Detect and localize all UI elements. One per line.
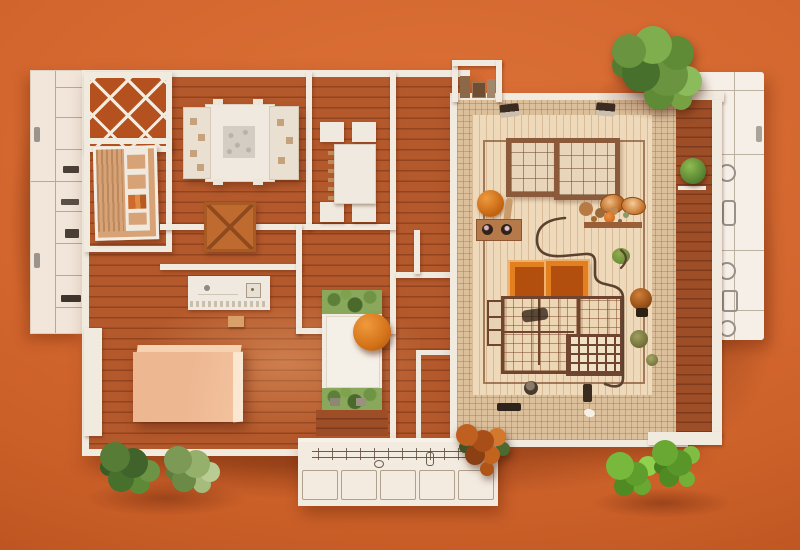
wall-dining-left xyxy=(306,72,312,230)
wing-shelf-line xyxy=(55,243,85,244)
miniature-object xyxy=(487,79,495,98)
planter-pot xyxy=(356,398,366,406)
bent-wire-sculpture xyxy=(457,100,667,426)
sink-basin-line xyxy=(198,294,238,295)
bed-tab xyxy=(213,99,223,105)
cabinet-face-row xyxy=(302,470,494,500)
daybed-head-planter xyxy=(322,290,382,314)
small-stool xyxy=(228,316,244,327)
wing-shelf-line xyxy=(55,149,85,150)
shelf-object-sketch xyxy=(61,199,79,205)
counter-dentil-trim xyxy=(190,301,268,307)
bottom-cabinet-panel xyxy=(298,438,498,506)
daybed-platform xyxy=(316,410,388,436)
niche-right-wall xyxy=(496,60,502,102)
planter-pot xyxy=(330,398,340,406)
wardrobe-shelf-column xyxy=(124,148,150,231)
cabinet-sketch-circle xyxy=(374,460,384,468)
headboard-cutout xyxy=(197,164,204,171)
peach-sofa-block xyxy=(133,352,241,422)
sofa-body xyxy=(133,352,233,422)
top-niche xyxy=(452,60,502,102)
double-bed xyxy=(183,104,297,180)
porch-right-wall xyxy=(712,100,722,436)
shelf-books-orange xyxy=(128,194,146,208)
hinge-sketch xyxy=(756,126,762,142)
dining-chair xyxy=(352,202,376,222)
cabinet-face xyxy=(302,470,338,500)
footboard-cutout xyxy=(278,157,285,164)
niche-top-wall xyxy=(452,60,502,66)
sofa-side-face xyxy=(233,352,243,423)
wing-shelf-line xyxy=(55,117,85,118)
porch-plant-shelf xyxy=(678,186,706,190)
kitchen-counter xyxy=(188,276,270,310)
hinge-sketch xyxy=(34,253,40,268)
dining-chair xyxy=(352,122,376,142)
bed-footboard xyxy=(269,106,299,180)
cabinet-face xyxy=(419,470,455,500)
cabinet-face xyxy=(380,470,416,500)
wing-shelf-line xyxy=(55,307,85,308)
wing-divider-line xyxy=(55,71,56,333)
photo-of-floorplan-model xyxy=(0,0,800,550)
bush-shadow xyxy=(86,480,246,516)
pitched-roof-side-table xyxy=(204,202,256,252)
shelf-object-sketch xyxy=(61,295,81,302)
headboard-cutout xyxy=(198,134,205,141)
wing-shelf-line xyxy=(55,275,85,276)
wall-kitchen-top xyxy=(160,264,302,270)
headboard-cutout xyxy=(190,118,197,125)
miniature-object xyxy=(472,82,486,98)
shelf-opening xyxy=(128,174,146,188)
bed-tab xyxy=(253,179,263,185)
wardrobe-shelf-unit xyxy=(93,145,159,241)
wall-left-pillar xyxy=(84,328,102,436)
bed-headboard xyxy=(183,107,211,179)
grass-bottom-right-1 xyxy=(606,452,634,480)
bush-bottom-left-2 xyxy=(164,446,192,474)
stove-outlet xyxy=(246,283,261,298)
wall-dining-right xyxy=(390,72,396,440)
round-orange-tree xyxy=(353,313,391,351)
wing-shelf-line xyxy=(55,211,85,212)
rust-bouquet xyxy=(456,424,478,446)
shelf-opening xyxy=(129,212,147,224)
wing-shelf-line xyxy=(55,87,85,88)
fixture-sketch xyxy=(722,200,736,226)
headboard-cutout xyxy=(190,150,197,157)
wall-stub-vertical xyxy=(414,230,420,274)
wall-connector-right xyxy=(396,272,450,278)
dining-chair xyxy=(320,122,344,142)
dining-chair xyxy=(320,202,344,222)
cabinet-face xyxy=(458,470,494,500)
footboard-cutout xyxy=(286,137,293,144)
large-fern xyxy=(612,34,646,68)
sink-faucet xyxy=(204,285,210,291)
niche-left-wall xyxy=(452,60,458,102)
courtyard-room xyxy=(450,93,688,447)
shelf-object-sketch xyxy=(65,229,79,238)
wardrobe-corrugation xyxy=(96,149,124,232)
bed-duvet-pattern xyxy=(223,126,255,158)
miniature-object xyxy=(460,76,470,98)
bed-tab xyxy=(253,99,263,105)
grass-bottom-right-2 xyxy=(652,440,678,466)
bed-tab xyxy=(213,179,223,185)
cabinet-face xyxy=(341,470,377,500)
wall-kitchen-right xyxy=(296,224,302,334)
dining-table xyxy=(334,144,376,204)
porch-shelf-plant xyxy=(680,158,706,184)
footboard-cutout xyxy=(277,119,284,126)
shelf-opening xyxy=(127,154,145,168)
grass-shadow xyxy=(592,488,732,518)
shelf-object-sketch xyxy=(63,166,79,173)
wing-shelf-line xyxy=(31,181,85,182)
fern-shadow xyxy=(596,70,716,120)
side-porch-floor xyxy=(676,100,712,434)
bush-bottom-left-1 xyxy=(100,442,130,472)
cabinet-sketch-ticks xyxy=(318,448,478,460)
outlet-dot xyxy=(251,288,254,291)
fixture-sketch xyxy=(722,290,738,312)
hinge-sketch xyxy=(34,127,40,142)
wall-long-horizontal xyxy=(160,224,396,230)
left-utility-wing xyxy=(30,70,86,334)
cabinet-sketch-bottle xyxy=(426,452,434,466)
